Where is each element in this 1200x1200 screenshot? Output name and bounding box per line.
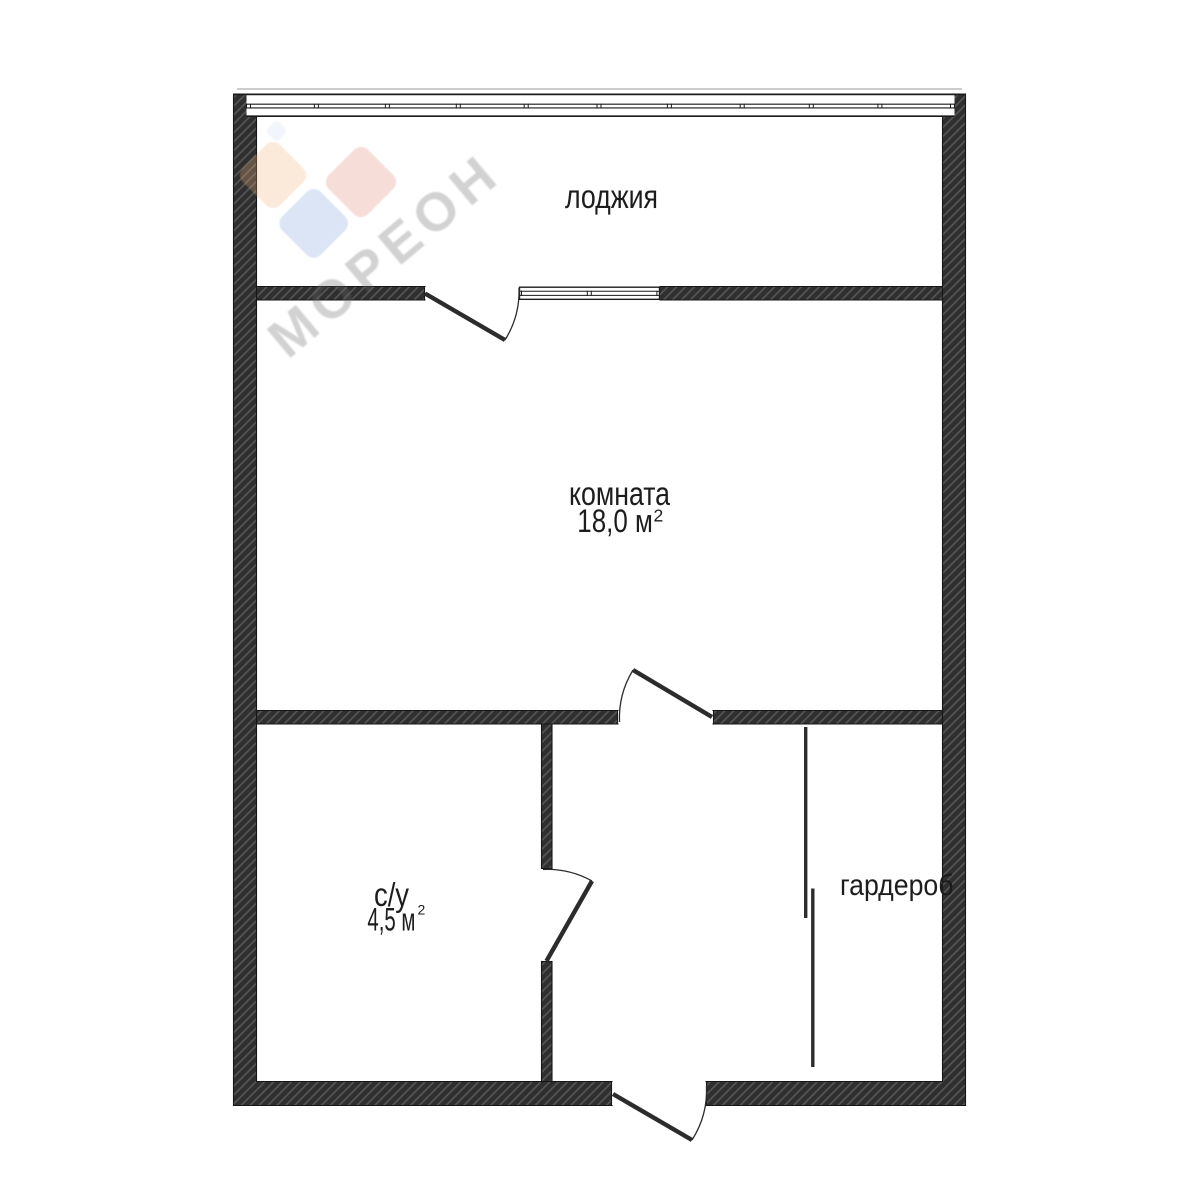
svg-text:18,0 м: 18,0 м — [577, 503, 653, 539]
svg-text:2: 2 — [653, 505, 663, 525]
svg-text:лоджия: лоджия — [565, 178, 658, 215]
svg-text:4,5 м: 4,5 м — [367, 902, 415, 938]
svg-text:2: 2 — [417, 901, 425, 917]
svg-text:гардероб: гардероб — [840, 869, 954, 902]
